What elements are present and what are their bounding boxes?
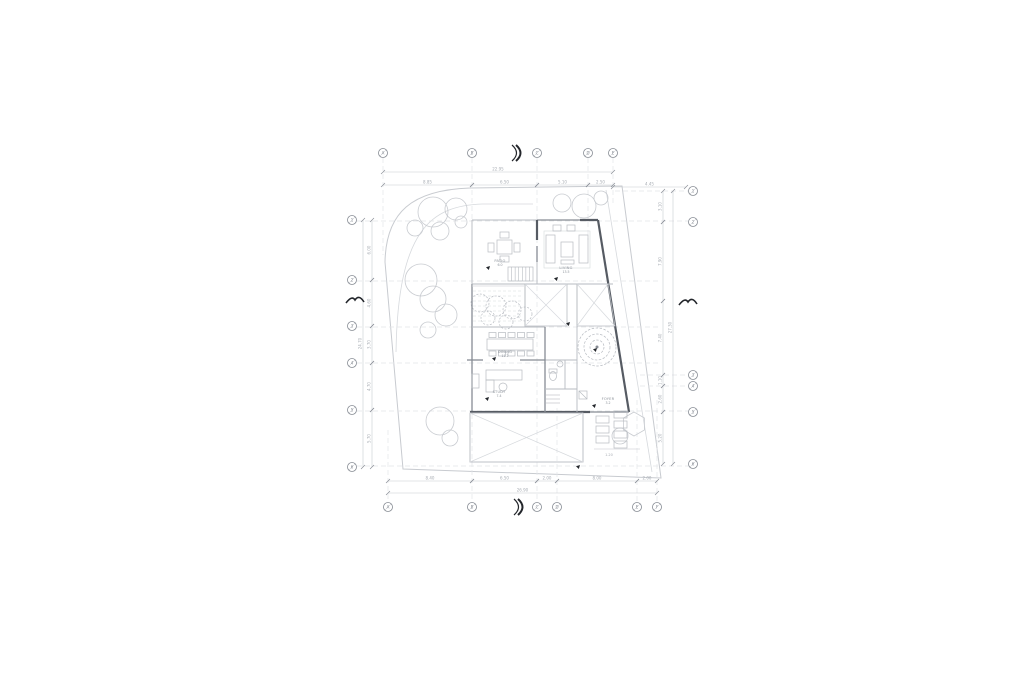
furniture-item	[508, 333, 515, 338]
dimension-horizontal: 8.85	[381, 180, 474, 188]
dimension-horizontal: 26.90	[386, 488, 659, 496]
dim-text: 4.60	[367, 298, 372, 307]
grid-bubble-label: 4	[692, 383, 695, 388]
dimension-vertical: 4.70	[367, 361, 375, 412]
grid-bubble: B	[468, 503, 477, 512]
room-label-area: 7.4	[496, 394, 501, 398]
dim-text: 2.00	[543, 476, 552, 481]
room-label: STUDY7.4	[485, 390, 506, 401]
grid-bubble-label: B	[471, 504, 474, 509]
grid-bubble-label: 2	[692, 219, 695, 224]
dimension-vertical: 4.60	[367, 278, 375, 328]
furniture-item	[596, 436, 609, 443]
section-chevron-icon	[514, 499, 519, 515]
grid-bubble: A	[384, 503, 393, 512]
dimension-vertical: 7.40	[658, 299, 666, 377]
grid-bubble-label: C	[536, 150, 539, 155]
leader-arrow	[576, 465, 580, 469]
furniture-item	[614, 431, 627, 438]
tree	[612, 428, 628, 444]
furniture-item	[596, 426, 609, 433]
grid-bubble: 3	[689, 371, 698, 380]
dim-text: 26.90	[517, 488, 529, 493]
furniture-chair	[557, 361, 563, 367]
room-label: DINING11.2	[492, 350, 512, 361]
grid-bubble-label: 3	[351, 323, 354, 328]
grid-bubble-label: A	[382, 150, 385, 155]
dim-text: 1.10	[658, 376, 663, 385]
grid-bubble-label: 5	[692, 409, 695, 414]
leader-arrow	[485, 397, 489, 401]
site-layer	[385, 186, 661, 478]
dim-text: 5.10	[558, 180, 567, 185]
room-label: PATIO6.0	[486, 259, 506, 270]
grid-bubble: D	[584, 149, 593, 158]
grid-bubble: C	[533, 503, 542, 512]
furniture-item	[500, 232, 509, 238]
dim-text: 6.00	[367, 245, 372, 254]
grid-bubble-label: D	[586, 150, 589, 155]
grid-bubble: F	[653, 503, 662, 512]
dim-text: 2.60	[658, 394, 663, 403]
furniture-item	[499, 333, 506, 338]
tree	[572, 194, 596, 218]
grid-bubble-label: 6	[351, 464, 354, 469]
dimension-horizontal: 2.00	[535, 476, 559, 484]
courtyard-tree-trunk	[596, 346, 599, 349]
furniture-item	[514, 243, 520, 252]
shrub	[471, 294, 489, 312]
rug	[544, 231, 590, 268]
grid-bubble: A	[379, 149, 388, 158]
dim-text: 8.40	[426, 476, 435, 481]
furniture-item	[553, 225, 561, 231]
grid-bubble: C	[533, 149, 542, 158]
dim-text: 5.20	[658, 433, 663, 442]
grid-bubble-label: B	[471, 150, 474, 155]
leader-arrow	[554, 277, 558, 281]
dimension-vertical: 24.70	[358, 218, 366, 469]
grid-layer: ABCDEABCDEF123456123456	[348, 149, 698, 512]
dim-text-mini: 1.20	[605, 453, 613, 457]
furniture-item	[472, 374, 479, 388]
grid-bubble-label: 6	[692, 461, 695, 466]
floor-plan-canvas: ABCDEABCDEF123456123456 22.958.856.505.1…	[0, 0, 1024, 682]
grid-bubble: E	[633, 503, 642, 512]
north-roof-mark-icon	[679, 299, 697, 305]
leader-arrow	[492, 357, 496, 361]
grid-bubble-label: 5	[351, 407, 354, 412]
grid-bubble-label: C	[536, 504, 539, 509]
dim-text: 4.70	[367, 382, 372, 391]
furniture-item	[614, 421, 627, 428]
dimension-horizontal: 6.50	[470, 476, 539, 484]
dimension-vertical: 27.30	[668, 189, 676, 466]
leader-arrow	[486, 266, 490, 270]
furniture-item	[489, 351, 496, 356]
furniture-item	[567, 225, 575, 231]
dimension-vertical: 6.00	[367, 218, 375, 282]
shrub	[503, 301, 521, 319]
grid-bubble: E	[609, 149, 618, 158]
dim-text: 6.50	[500, 476, 509, 481]
tree	[431, 222, 449, 240]
grid-bubble: 6	[689, 460, 698, 469]
furniture-item	[546, 235, 555, 263]
furniture-item	[579, 235, 588, 263]
grid-bubble: 5	[689, 408, 698, 417]
dim-text: 3.70	[367, 340, 372, 349]
grid-bubble-label: 1	[692, 188, 695, 193]
furniture-item	[487, 339, 533, 350]
tree	[407, 220, 423, 236]
grid-bubble: 1	[689, 187, 698, 196]
dimension-vertical: 3.70	[367, 324, 375, 365]
furniture-item	[596, 416, 609, 423]
dim-text: 24.70	[358, 337, 363, 349]
dim-text: 8.00	[593, 476, 602, 481]
dimension-horizontal: 8.40	[386, 476, 474, 484]
grid-bubble-label: 4	[351, 360, 354, 365]
tree	[455, 216, 467, 228]
grid-bubble: 4	[348, 359, 357, 368]
section-chevron-icon	[512, 145, 517, 161]
furniture-item	[489, 333, 496, 338]
floor-plan-sheet: ABCDEABCDEF123456123456 22.958.856.505.1…	[0, 0, 1024, 682]
dimension-vertical: 7.90	[658, 220, 666, 303]
grid-bubble: 3	[348, 322, 357, 331]
room-label: FOYER3.2	[592, 397, 615, 408]
section-marker	[512, 145, 521, 161]
grid-bubble: 4	[689, 382, 698, 391]
grid-bubble: 2	[689, 218, 698, 227]
dim-text: 8.85	[423, 180, 432, 185]
site-boundary	[385, 186, 661, 478]
furniture-line	[579, 391, 587, 399]
void-diagonal	[577, 284, 608, 326]
dimensions-layer: 22.958.856.505.102.504.458.406.502.008.0…	[358, 167, 689, 496]
furniture-item	[497, 240, 512, 254]
dim-text: 27.30	[668, 321, 673, 333]
dim-text: 6.50	[500, 180, 509, 185]
setback-line	[606, 190, 652, 472]
tree	[435, 304, 457, 326]
tree	[405, 264, 437, 296]
furniture-item	[527, 351, 534, 356]
furniture-item	[518, 333, 525, 338]
driveway-curve	[396, 204, 533, 352]
grid-bubble: 2	[348, 276, 357, 285]
grid-bubble-label: D	[555, 504, 558, 509]
tree	[442, 430, 458, 446]
dim-text: 4.45	[645, 182, 654, 187]
grid-bubble-label: A	[387, 504, 390, 509]
leader-arrow	[593, 348, 597, 352]
dim-text: 7.90	[658, 257, 663, 266]
dim-text: 2.50	[596, 180, 605, 185]
furniture-item	[527, 333, 534, 338]
furniture-item	[488, 243, 494, 252]
furniture-item	[518, 351, 525, 356]
dimension-horizontal: 22.95	[381, 167, 615, 175]
room-label-area: 6.0	[497, 263, 502, 267]
room-label-area: 11.2	[501, 354, 508, 358]
dimension-horizontal: 5.10	[535, 180, 590, 188]
grid-bubble-label: 3	[692, 372, 695, 377]
grid-bubble: 5	[348, 406, 357, 415]
grid-bubble: B	[468, 149, 477, 158]
tree	[553, 194, 571, 212]
furniture-item	[549, 369, 557, 373]
grid-bubble-label: 2	[351, 277, 354, 282]
tree	[420, 322, 436, 338]
dim-text: 22.95	[492, 167, 504, 172]
furniture-item	[486, 370, 522, 380]
dimension-horizontal: 6.50	[470, 180, 539, 188]
grid-bubble: 1	[348, 216, 357, 225]
tree	[594, 191, 608, 205]
leader-arrow	[592, 404, 596, 408]
shrub	[481, 311, 495, 325]
dim-text: 5.70	[367, 434, 372, 443]
dim-text: 3.10	[658, 202, 663, 211]
grid-bubble-label: 1	[351, 217, 354, 222]
grid-bubble: D	[553, 503, 562, 512]
dim-text: 7.40	[658, 333, 663, 342]
tree	[420, 286, 446, 312]
room-label-area: 13.5	[562, 270, 569, 274]
furniture-item	[561, 242, 573, 257]
north-roof-mark-icon	[346, 297, 364, 303]
section-marker	[514, 499, 523, 515]
grid-bubble: 6	[348, 463, 357, 472]
annotations-layer: PATIO6.0LIVING13.5DINING11.2STUDY7.4FOYE…	[346, 145, 697, 515]
dimension-vertical: 5.70	[367, 408, 375, 469]
dim-text: 2.00	[643, 476, 652, 481]
dimension-vertical: 3.10	[658, 189, 666, 224]
dimension-horizontal: 2.00	[635, 476, 659, 484]
room-label-area: 3.2	[605, 401, 610, 405]
dimension-vertical: 2.60	[658, 384, 666, 414]
furniture-item	[561, 260, 574, 264]
